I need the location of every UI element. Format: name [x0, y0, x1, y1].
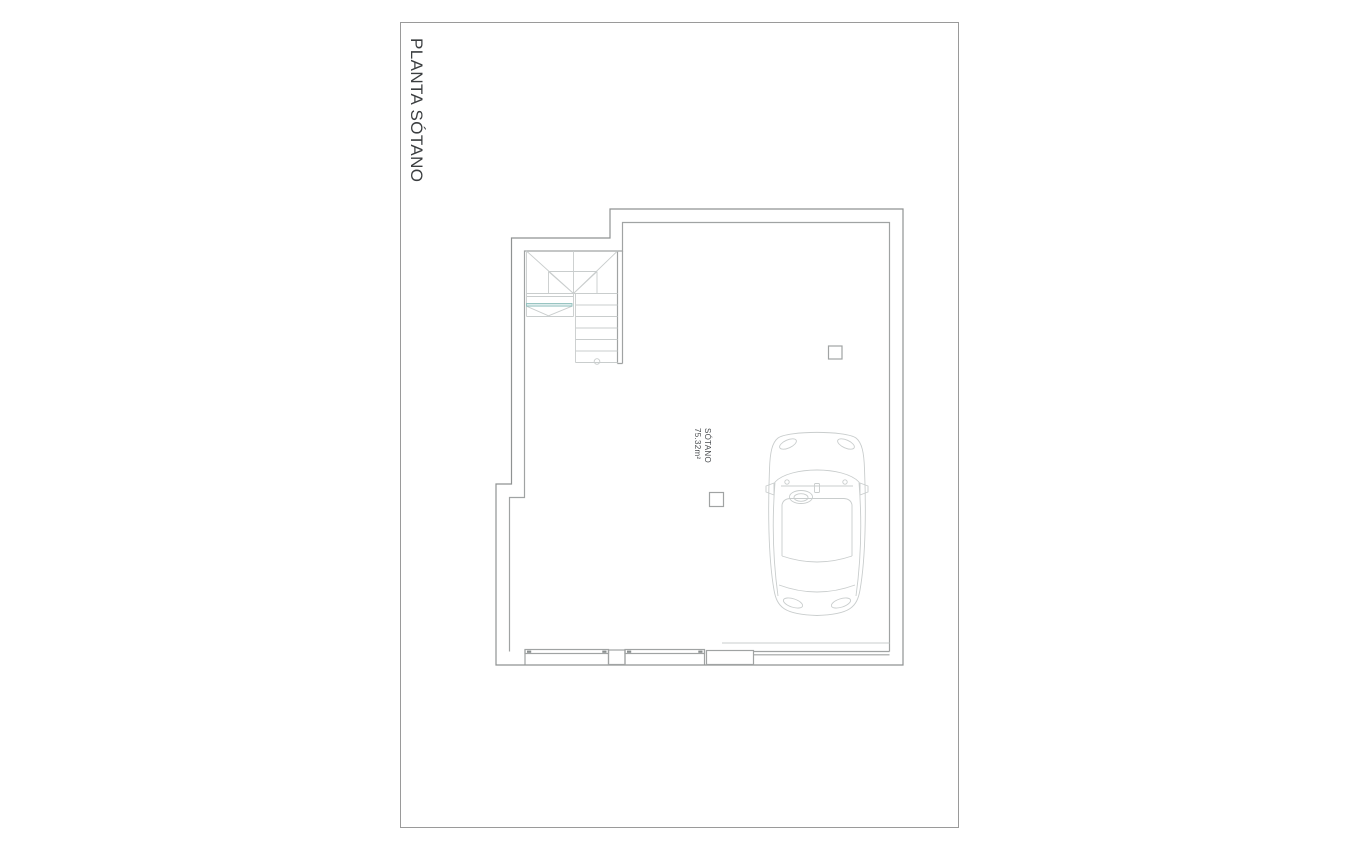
stair-cut-marker [527, 304, 573, 307]
wall-pier [707, 651, 754, 665]
stair-treads [576, 294, 618, 363]
stair-newel-post [594, 359, 600, 365]
staircase-icon [527, 251, 623, 364]
floor-plan-drawing [0, 0, 1360, 850]
room-label: SÓTANO 75.32m² [692, 428, 712, 463]
window-symbol [625, 650, 705, 665]
structural-column-marker [710, 493, 724, 507]
window-symbol [525, 650, 609, 665]
room-area: 75.32m² [692, 428, 702, 463]
garage-door-symbol [722, 643, 890, 655]
wall-pier [609, 650, 626, 665]
stair-side-wall [618, 251, 623, 364]
room-name: SÓTANO [702, 428, 712, 463]
structural-column-marker [829, 346, 843, 359]
car-top-view-icon [766, 432, 868, 615]
bottom-wall-openings [525, 643, 890, 665]
